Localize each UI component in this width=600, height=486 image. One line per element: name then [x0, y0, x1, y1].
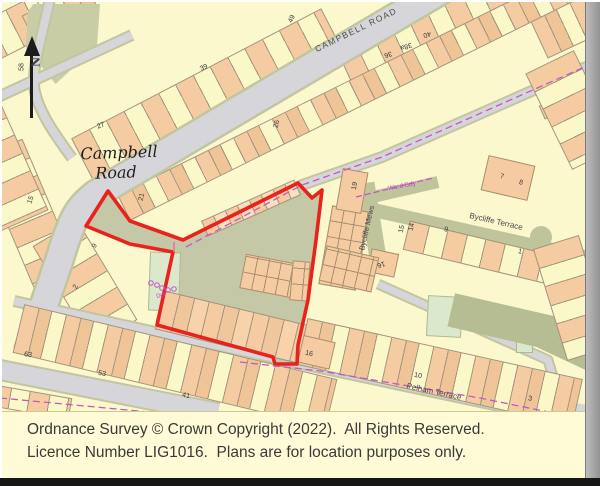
- def-boundary-marker: [149, 281, 154, 286]
- page-margin-left: [0, 0, 2, 478]
- ward-boundary-pelham: [240, 362, 568, 416]
- north-label: N: [31, 57, 42, 67]
- os-location-plan: N CAMPBELL ROADCampbellRoadBycliffe Terr…: [0, 0, 600, 486]
- scan-edge-bottom: [0, 478, 600, 486]
- def-boundary-marker: [172, 287, 177, 292]
- copyright-line-2: Licence Number LIG1016. Plans are for lo…: [27, 444, 466, 462]
- house-number: 41: [182, 392, 191, 400]
- scan-edge-right: [585, 0, 600, 478]
- copyright-line-1: Ordnance Survey © Crown Copyright (2022)…: [27, 421, 485, 439]
- def-boundary-marker: [155, 283, 160, 288]
- house-number: 10: [414, 372, 423, 380]
- house-number: 63: [24, 351, 33, 359]
- house-number: 58: [19, 63, 26, 71]
- copyright-banner: Ordnance Survey © Crown Copyright (2022)…: [0, 411, 586, 479]
- street-label-campbell: Campbell: [80, 144, 158, 163]
- boundary-layer: [0, 0, 600, 478]
- house-number: 53: [98, 370, 107, 378]
- house-number: 19: [351, 182, 359, 191]
- site-boundary: [86, 183, 322, 364]
- map-canvas: N CAMPBELL ROADCampbellRoadBycliffe Terr…: [0, 0, 600, 478]
- north-arrow-head: [24, 36, 40, 56]
- ward-boundary-road: [186, 61, 598, 247]
- house-number: 16: [304, 350, 313, 358]
- street-label-road: Road: [95, 164, 137, 181]
- page-margin-top: [0, 0, 600, 2]
